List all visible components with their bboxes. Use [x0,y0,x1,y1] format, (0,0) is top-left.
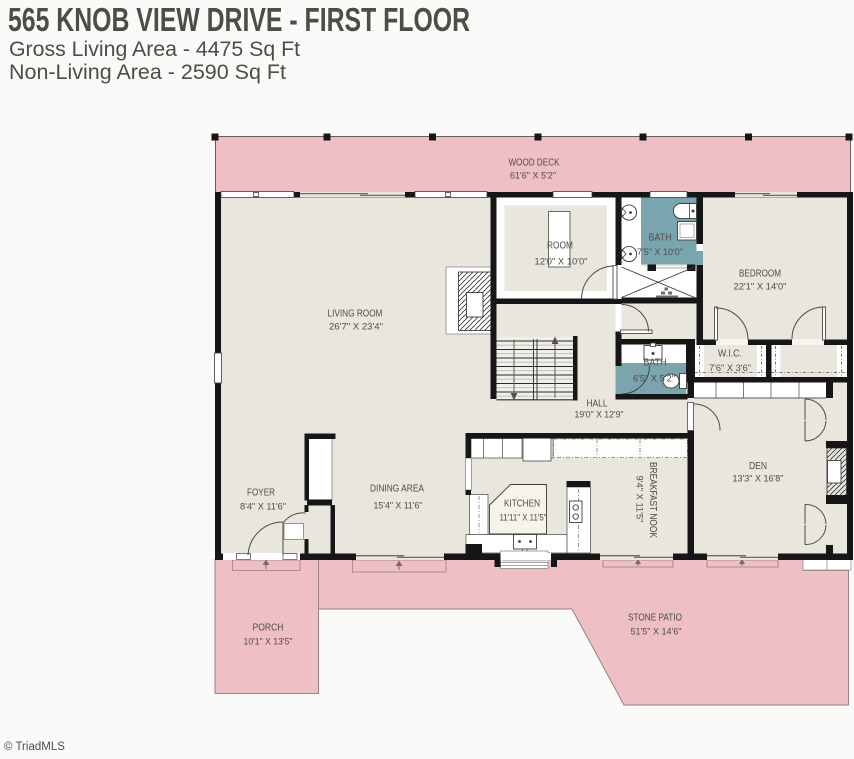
svg-text:FOYER: FOYER [247,488,275,499]
svg-text:BEDROOM: BEDROOM [739,269,781,280]
svg-text:7'5" X 10'0": 7'5" X 10'0" [637,247,683,257]
svg-text:19'0" X 12'9": 19'0" X 12'9" [575,410,624,420]
svg-text:© TriadMLS: © TriadMLS [4,741,65,753]
svg-text:13'3" X 16'8": 13'3" X 16'8" [733,474,784,484]
svg-text:DINING AREA: DINING AREA [370,484,424,495]
svg-text:12'0" X 10'0": 12'0" X 10'0" [535,257,588,267]
svg-text:DEN: DEN [749,461,767,472]
svg-text:9'4" X 11'5": 9'4" X 11'5" [635,476,645,523]
svg-text:STONE PATIO: STONE PATIO [628,613,682,624]
svg-text:BATH: BATH [649,233,672,244]
svg-text:HALL: HALL [587,399,608,410]
svg-text:61'6" X 5'2": 61'6" X 5'2" [510,171,556,181]
svg-text:WOOD DECK: WOOD DECK [509,158,560,169]
svg-text:PORCH: PORCH [253,623,284,634]
svg-text:KITCHEN: KITCHEN [504,499,540,510]
svg-text:BREAKFAST NOOK: BREAKFAST NOOK [647,462,658,538]
svg-text:11'11" X 11'5": 11'11" X 11'5" [500,513,547,523]
svg-text:6'5" X 5'2": 6'5" X 5'2" [633,374,675,384]
svg-text:8'4" X 11'6": 8'4" X 11'6" [240,502,286,512]
svg-text:W.I.C.: W.I.C. [718,349,742,360]
svg-text:ROOM: ROOM [547,241,573,252]
svg-text:22'1" X 14'0": 22'1" X 14'0" [734,282,787,292]
svg-text:7'6" X 3'6": 7'6" X 3'6" [709,363,751,373]
svg-text:Gross Living Area - 4475 Sq Ft: Gross Living Area - 4475 Sq Ft [9,38,300,61]
svg-text:15'4" X 11'6": 15'4" X 11'6" [374,501,423,511]
svg-text:LIVING ROOM: LIVING ROOM [328,309,383,320]
svg-text:565 KNOB VIEW DRIVE - FIRST FL: 565 KNOB VIEW DRIVE - FIRST FLOOR [8,1,470,38]
svg-text:BATH: BATH [644,358,667,369]
svg-text:51'5" X 14'6": 51'5" X 14'6" [631,627,682,637]
svg-text:26'7" X 23'4": 26'7" X 23'4" [329,322,383,332]
svg-text:Non-Living Area - 2590 Sq Ft: Non-Living Area - 2590 Sq Ft [9,61,286,84]
svg-text:10'1" X 13'5": 10'1" X 13'5" [244,637,293,647]
